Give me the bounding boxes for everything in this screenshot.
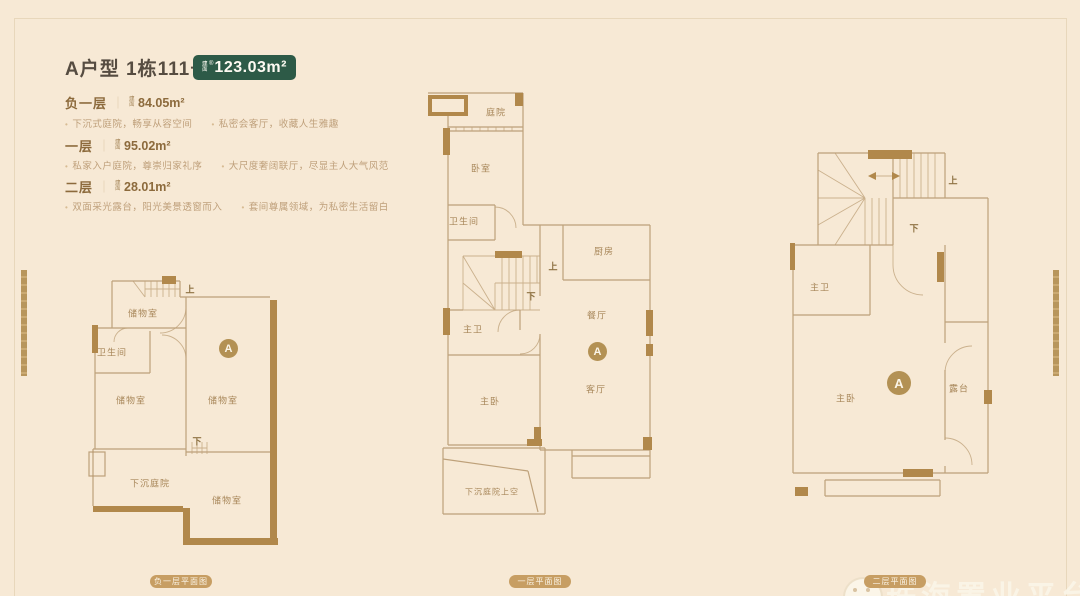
bullet-text: 私密会客厅，收藏人生雅趣	[219, 119, 339, 130]
floor-name: 二层	[65, 177, 93, 196]
room-label-storage: 储物室	[212, 494, 242, 507]
stair-up-label: 上	[548, 260, 557, 273]
section-basement-header: 负一层 ｜ 建面 84.05m²	[65, 93, 185, 112]
stair-up-label: 上	[948, 174, 957, 187]
floor-area: 28.01m²	[124, 180, 171, 194]
room-label-bedroom: 卧室	[471, 162, 491, 175]
room-label-kitchen: 厨房	[594, 245, 614, 258]
section-first-header: 一层 ｜ 建面 95.02m²	[65, 136, 171, 155]
bullet-icon: •	[241, 203, 244, 212]
wall-accents	[92, 276, 278, 545]
room-label-master-bedroom: 主卧	[480, 395, 500, 408]
area-prefix: 建面	[202, 62, 208, 72]
room-label-terrace: 露台	[949, 382, 969, 395]
walls	[428, 93, 650, 514]
bullet-icon: •	[65, 120, 68, 129]
doors	[893, 245, 972, 465]
room-label-courtyard: 庭院	[486, 106, 506, 119]
bullet-icon: •	[65, 162, 68, 171]
room-label-dining: 餐厅	[587, 309, 607, 322]
bullet-text: 私家入户庭院，尊崇归家礼序	[72, 161, 202, 172]
room-label-bathroom: 卫生间	[97, 346, 127, 359]
section-first-bullets: •私家入户庭院，尊崇归家礼序 •大尺度奢阔联厅，尽显主人大气风范	[65, 158, 389, 172]
page-title: A户型 1栋111号	[65, 54, 210, 81]
floorplan-second-drawing	[790, 140, 1015, 560]
unit-a-badge: A	[887, 371, 911, 395]
unit-a-badge: A	[588, 342, 607, 361]
caption-second-plan: 二层平面图	[864, 575, 926, 588]
room-label-master-bedroom: 主卧	[836, 392, 856, 405]
bullet-text: 套间尊属领域，为私密生活留白	[249, 202, 389, 213]
room-label-master-bath: 主卫	[810, 281, 830, 294]
room-label-void-over-courtyard: 下沉庭院上空	[465, 487, 519, 498]
floorplan-page: A户型 1栋111号 建面 ® 123.03m² 负一层 ｜ 建面 84.05m…	[0, 0, 1080, 596]
bullet-text: 大尺度奢阔联厅，尽显主人大气风范	[229, 161, 389, 172]
room-label-living: 客厅	[586, 383, 606, 396]
area-prefix: 建面	[115, 140, 121, 150]
unit-a-badge: A	[219, 339, 238, 358]
stair-down-label: 下	[909, 222, 918, 235]
stair-up-label: 上	[185, 283, 194, 296]
bullet-icon: •	[65, 203, 68, 212]
section-second-header: 二层 ｜ 建面 28.01m²	[65, 177, 171, 196]
divider: ｜	[98, 137, 110, 154]
divider: ｜	[112, 94, 124, 111]
room-label-storage: 储物室	[208, 394, 238, 407]
registered-mark: ®	[209, 61, 213, 67]
bullet-text: 双面采光露台，阳光美景透窗而入	[72, 202, 222, 213]
room-label-storage: 储物室	[116, 394, 146, 407]
section-second-bullets: •双面采光露台，阳光美景透窗而入 •套间尊属领域，为私密生活留白	[65, 199, 389, 213]
room-label-storage: 储物室	[128, 307, 158, 320]
right-ruler-ornament	[1053, 270, 1059, 376]
area-prefix: 建面	[115, 181, 121, 191]
bullet-text: 下沉式庭院，畅享从容空间	[72, 119, 192, 130]
floor-name: 一层	[65, 136, 93, 155]
caption-basement-plan: 负一层平面图	[150, 575, 212, 588]
floor-name: 负一层	[65, 93, 107, 112]
divider: ｜	[98, 178, 110, 195]
room-label-sunken-courtyard: 下沉庭院	[130, 477, 170, 490]
bullet-icon: •	[221, 162, 224, 171]
floorplan-basement-drawing	[88, 276, 300, 550]
caption-first-plan: 一层平面图	[509, 575, 571, 588]
room-label-master-bath: 主卫	[463, 323, 483, 336]
stair-down-label: 下	[526, 290, 535, 303]
floorplan-first-drawing	[420, 88, 655, 518]
room-label-bathroom: 卫生间	[449, 215, 479, 228]
floor-area: 84.05m²	[138, 96, 185, 110]
section-basement-bullets: •下沉式庭院，畅享从容空间 •私密会客厅，收藏人生雅趣	[65, 116, 339, 130]
total-area-value: 123.03m²	[214, 59, 287, 77]
area-prefix: 建面	[129, 97, 135, 107]
stair-down-label: 下	[192, 435, 201, 448]
walls	[793, 153, 988, 496]
floor-area: 95.02m²	[124, 139, 171, 153]
total-area-badge: 建面 ® 123.03m²	[193, 55, 296, 80]
left-ruler-ornament	[21, 270, 27, 376]
bullet-icon: •	[211, 120, 214, 129]
